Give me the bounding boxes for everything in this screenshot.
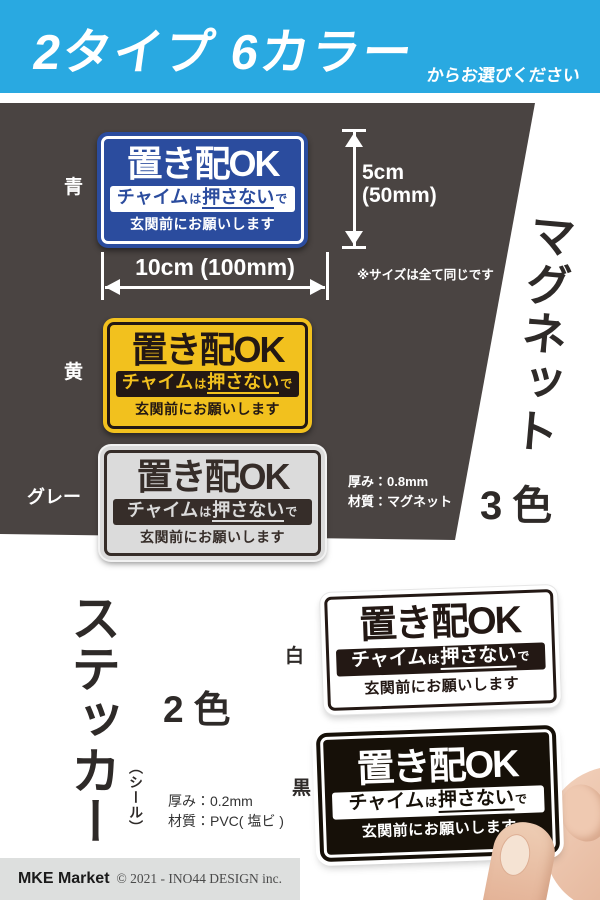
arrow-end-cap [101, 252, 104, 300]
sticker-type-label: ステッカー [56, 592, 128, 847]
arrow-head-left [105, 279, 120, 295]
arrow-head-up [345, 133, 363, 147]
sticker-type-sublabel: （シール） [126, 760, 146, 835]
arrow-end-cap [342, 246, 366, 249]
brand-name: MKE Market [18, 870, 110, 888]
chime-text-main: 押さない [440, 645, 517, 670]
chime-text-main: 押さない [438, 789, 515, 814]
label-yellow: 黄 [64, 357, 83, 384]
chime-text-de: で [280, 378, 292, 390]
sign-content: 置き配OK チャイム は 押さない で 玄関前にお願いします [105, 140, 300, 240]
magnet-sign-blue: 置き配OK チャイム は 押さない で 玄関前にお願いします [97, 132, 308, 248]
label-gray: グレー [27, 483, 81, 509]
arrow-line [105, 286, 325, 289]
magnet-sign-yellow: 置き配OK チャイム は 押さない で 玄関前にお願いします [103, 318, 312, 433]
chime-text-wa: は [425, 796, 437, 808]
label-black: 黒 [292, 773, 311, 800]
magnet-spec: 厚み：0.8mm 材質：マグネット [348, 472, 452, 511]
sign-footer-text: 玄関前にお願いします [364, 672, 520, 698]
chime-text-wa: は [189, 193, 201, 205]
copyright-text: © 2021 - INO44 DESIGN inc. [117, 871, 283, 887]
sign-title-text: 置き配OK [136, 459, 288, 496]
sign-content: 置き配OK チャイム は 押さない で 玄関前にお願いします [108, 454, 317, 552]
sticker-color-count: 2色 [163, 679, 241, 733]
sticker-spec-thickness: 厚み：0.2mm [168, 792, 284, 812]
chime-text-pre: チャイム [348, 792, 424, 814]
sign-chime-bar: チャイム は 押さない で [113, 499, 312, 525]
chime-text-de: で [517, 650, 529, 662]
arrow-end-cap [326, 252, 329, 300]
magnet-type-label: マグネット [498, 209, 585, 459]
height-label-mm: (50mm) [362, 185, 437, 208]
sign-title-text: 置き配OK [358, 601, 520, 645]
sign-content: 置き配OK チャイム は 押さない で 玄関前にお願いします [328, 593, 553, 707]
sign-footer-text: 玄関前にお願いします [361, 816, 517, 842]
arrow-head-down [345, 231, 363, 245]
arrow-line [353, 132, 356, 246]
magnet-sign-gray: 置き配OK チャイム は 押さない で 玄関前にお願いします [100, 446, 325, 560]
sign-title-text: 置き配OK [356, 745, 518, 789]
header-banner: 2タイプ 6カラー からお選びください [0, 0, 600, 93]
product-infographic: 2タイプ 6カラー からお選びください 青 黄 グレー 置き配OK チャイム は… [0, 0, 600, 900]
width-dimension-label: 10cm (100mm) [101, 254, 329, 281]
label-white: 白 [285, 641, 304, 668]
header-subtitle: からお選びください [426, 61, 582, 86]
magnet-spec-thickness: 厚み：0.8mm [348, 472, 452, 492]
label-blue: 青 [64, 172, 83, 199]
sticker-sign-white: 置き配OK チャイム は 押さない で 玄関前にお願いします [320, 585, 561, 715]
height-label-cm: 5cm [362, 162, 437, 185]
sign-footer-text: 玄関前にお願いします [130, 214, 275, 234]
sign-title-text: 置き配OK [126, 146, 278, 183]
chime-text-pre: チャイム [351, 648, 427, 670]
chime-text-de: で [515, 793, 527, 805]
size-note: ※サイズは全て同じです [357, 264, 494, 283]
width-dimension-arrow: 10cm (100mm) [101, 252, 329, 300]
chime-text-de: で [275, 193, 287, 205]
chime-text-wa: は [194, 378, 206, 390]
chime-text-pre: チャイム [127, 501, 198, 519]
chime-text-main: 押さない [207, 373, 279, 394]
sign-footer-text: 玄関前にお願いします [140, 527, 285, 547]
magnet-color-count: 3色 [480, 473, 562, 531]
footer-bar: MKE Market © 2021 - INO44 DESIGN inc. [0, 858, 300, 900]
chime-text-pre: チャイム [122, 373, 193, 391]
sign-content: 置き配OK チャイム は 押さない で 玄関前にお願いします [111, 326, 304, 425]
sticker-spec: 厚み：0.2mm 材質：PVC( 塩ビ ) [168, 792, 284, 831]
header-title: 2タイプ 6カラー [29, 13, 419, 84]
chime-text-main: 押さない [202, 188, 274, 209]
sticker-spec-material: 材質：PVC( 塩ビ ) [168, 812, 284, 832]
chime-text-wa: は [427, 653, 439, 665]
magnet-spec-material: 材質：マグネット [348, 492, 452, 512]
sign-chime-bar: チャイム は 押さない で [116, 371, 299, 397]
chime-text-wa: は [199, 506, 211, 518]
sign-title-text: 置き配OK [131, 332, 283, 369]
sign-chime-bar: チャイム は 押さない で [110, 186, 295, 212]
arrow-head-right [310, 279, 325, 295]
height-dimension-label: 5cm (50mm) [362, 162, 437, 207]
chime-text-pre: チャイム [117, 188, 188, 206]
chime-text-de: で [285, 506, 297, 518]
sign-footer-text: 玄関前にお願いします [135, 399, 280, 419]
chime-text-main: 押さない [212, 501, 284, 522]
